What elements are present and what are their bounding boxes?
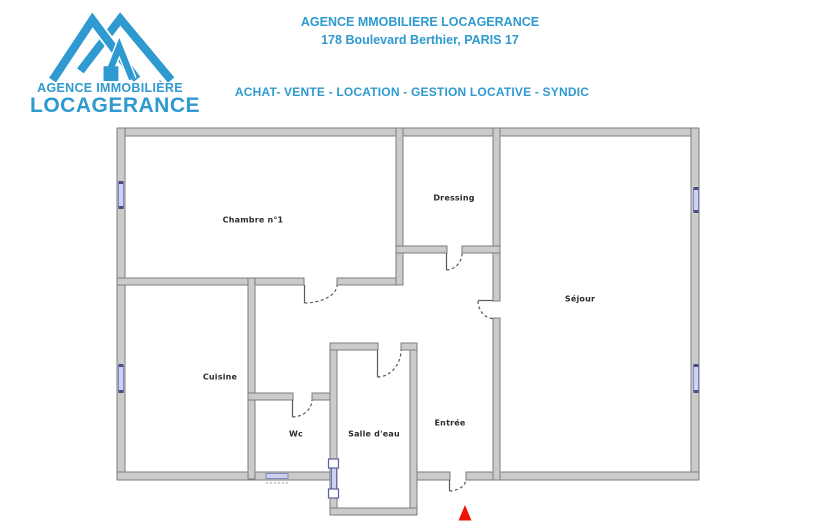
wall-dressing-bottom-left bbox=[396, 246, 447, 253]
floor-plan: Chambre n°1 Dressing Séjour Cuisine Wc S… bbox=[0, 0, 824, 531]
door-arc-dressing bbox=[447, 253, 463, 270]
walls bbox=[117, 128, 699, 515]
door-arc-sejour bbox=[478, 301, 493, 319]
window-sejour-right-upper bbox=[694, 187, 699, 213]
wall-sejour-divider-lower bbox=[493, 318, 500, 480]
room-label-salledeau: Salle d'eau bbox=[348, 430, 400, 439]
door-arc-wc bbox=[293, 400, 313, 417]
floor-plan-page: AGENCE IMMOBILIÈRE LOCAGERANCE AGENCE MM… bbox=[0, 0, 824, 531]
door-arc-salledeau bbox=[378, 350, 402, 377]
wall-salledeau-right bbox=[410, 343, 417, 515]
window-sejour-right-lower bbox=[694, 364, 699, 393]
wall-cuisine-right bbox=[248, 278, 255, 479]
room-label-cuisine: Cuisine bbox=[203, 373, 237, 382]
wall-salledeau-top-left bbox=[330, 343, 378, 350]
wall-dressing-bottom-right bbox=[462, 246, 500, 253]
doors bbox=[293, 253, 494, 491]
window-cuisine-left bbox=[119, 364, 124, 393]
wall-salledeau-bottom bbox=[330, 508, 417, 515]
wall-wc-top-left bbox=[248, 393, 293, 400]
windows bbox=[119, 181, 699, 498]
entrance-marker-icon bbox=[459, 505, 472, 521]
wall-outer-top bbox=[117, 128, 699, 136]
wall-salledeau-top-right bbox=[401, 343, 417, 350]
room-label-sejour: Séjour bbox=[565, 295, 595, 304]
wall-sejour-divider-upper bbox=[493, 128, 500, 301]
door-arc-entree bbox=[450, 480, 467, 492]
room-label-chambre: Chambre n°1 bbox=[223, 216, 284, 225]
wall-chambre-bottom-left bbox=[117, 278, 304, 285]
room-label-dressing: Dressing bbox=[433, 194, 474, 203]
room-label-entree: Entrée bbox=[435, 419, 466, 428]
window-wc-bottom bbox=[266, 474, 288, 484]
room-label-wc: Wc bbox=[289, 430, 303, 439]
wall-chambre-dressing-divider bbox=[396, 128, 403, 285]
wall-outer-right bbox=[691, 128, 699, 480]
floor-plan-drawing bbox=[0, 0, 824, 531]
window-chambre-left bbox=[119, 181, 124, 209]
wall-outer-left bbox=[117, 128, 125, 480]
wall-outer-bottom-right bbox=[466, 472, 699, 480]
wall-outer-bottom-left bbox=[117, 472, 331, 480]
wall-chambre-bottom-right bbox=[337, 278, 403, 285]
door-arc-chambre bbox=[305, 285, 338, 303]
